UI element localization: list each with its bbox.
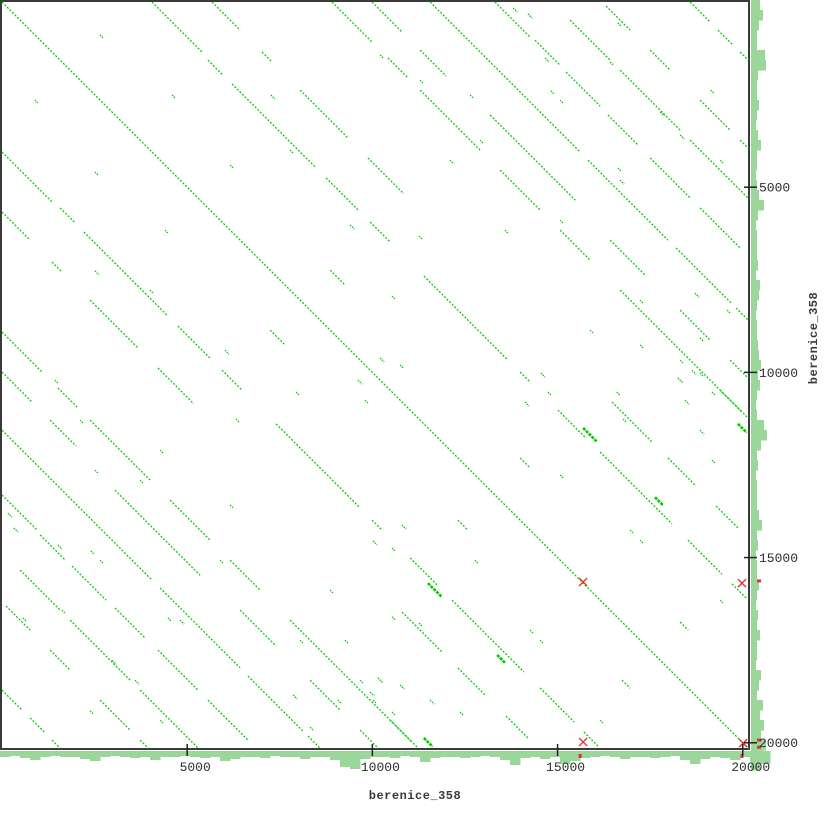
y-axis-tick-label: 20000 [759, 736, 798, 751]
x-axis-tick-label: 10000 [361, 760, 400, 775]
x-axis-sequence-label: berenice_358 [0, 789, 830, 803]
axis-ticks: 50005000100001000015000150002000020000 [180, 181, 798, 775]
y-axis-sequence-label: berenice_358 [807, 292, 821, 384]
dotplot-figure: 50005000100001000015000150002000020000 b… [0, 0, 830, 830]
right-profile-strip [751, 0, 767, 770]
dotplot-canvas: 50005000100001000015000150002000020000 [0, 0, 830, 830]
y-axis-tick-label: 5000 [759, 181, 790, 196]
match-diagonals [2, 2, 749, 749]
y-axis-tick-label: 10000 [759, 366, 798, 381]
x-axis-tick-label: 15000 [546, 760, 585, 775]
red-markers [579, 578, 761, 758]
x-axis-tick-label: 5000 [180, 760, 211, 775]
y-axis-tick-label: 15000 [759, 551, 798, 566]
x-axis-tick-label: 20000 [731, 760, 770, 775]
